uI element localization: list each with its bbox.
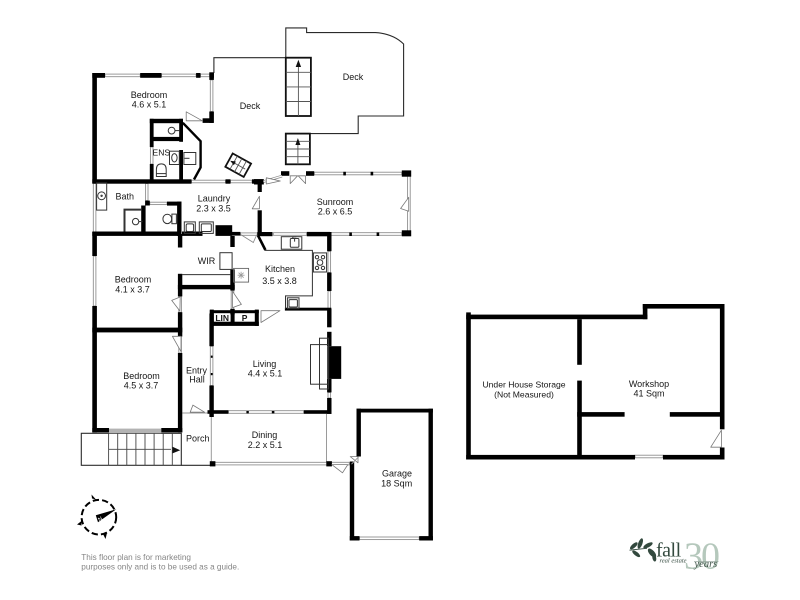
svg-text:real estate: real estate	[660, 558, 687, 565]
svg-text:4.6 x 5.1: 4.6 x 5.1	[132, 100, 167, 110]
svg-text:years: years	[694, 559, 718, 570]
svg-text:4.4 x 5.1: 4.4 x 5.1	[248, 369, 283, 379]
svg-text:2.2 x 5.1: 2.2 x 5.1	[248, 440, 283, 450]
svg-text:3.5 x 3.8: 3.5 x 3.8	[262, 276, 297, 286]
svg-text:WIR: WIR	[198, 256, 216, 266]
svg-text:4.5 x 3.7: 4.5 x 3.7	[124, 381, 159, 391]
svg-text:Bedroom: Bedroom	[131, 90, 168, 100]
svg-text:Kitchen: Kitchen	[265, 264, 295, 274]
svg-text:Bath: Bath	[116, 191, 135, 201]
svg-text:LIN: LIN	[215, 313, 229, 323]
svg-text:Bedroom: Bedroom	[115, 275, 152, 285]
svg-text:41 Sqm: 41 Sqm	[633, 389, 664, 399]
svg-text:ENS: ENS	[153, 147, 171, 157]
svg-text:purposes only and is to be use: purposes only and is to be used as a gui…	[81, 563, 239, 572]
svg-text:This floor plan is for marketi: This floor plan is for marketing	[81, 553, 191, 562]
svg-text:Hall: Hall	[189, 375, 205, 385]
svg-text:Under House Storage: Under House Storage	[482, 380, 565, 390]
svg-text:18 Sqm: 18 Sqm	[381, 479, 412, 489]
svg-text:2.6 x 6.5: 2.6 x 6.5	[318, 207, 353, 217]
svg-text:(Not Measured): (Not Measured)	[494, 390, 554, 400]
svg-text:4.1 x 3.7: 4.1 x 3.7	[115, 285, 150, 295]
svg-text:30: 30	[684, 536, 719, 578]
svg-text:Porch: Porch	[186, 433, 210, 443]
svg-text:P: P	[242, 313, 248, 323]
svg-text:Dining: Dining	[252, 430, 278, 440]
svg-text:Deck: Deck	[343, 72, 364, 82]
svg-text:Laundry: Laundry	[198, 194, 231, 204]
svg-text:Deck: Deck	[240, 101, 261, 111]
svg-text:2.3 x 3.5: 2.3 x 3.5	[196, 204, 231, 214]
svg-text:Garage: Garage	[382, 469, 412, 479]
svg-text:Workshop: Workshop	[629, 379, 669, 389]
